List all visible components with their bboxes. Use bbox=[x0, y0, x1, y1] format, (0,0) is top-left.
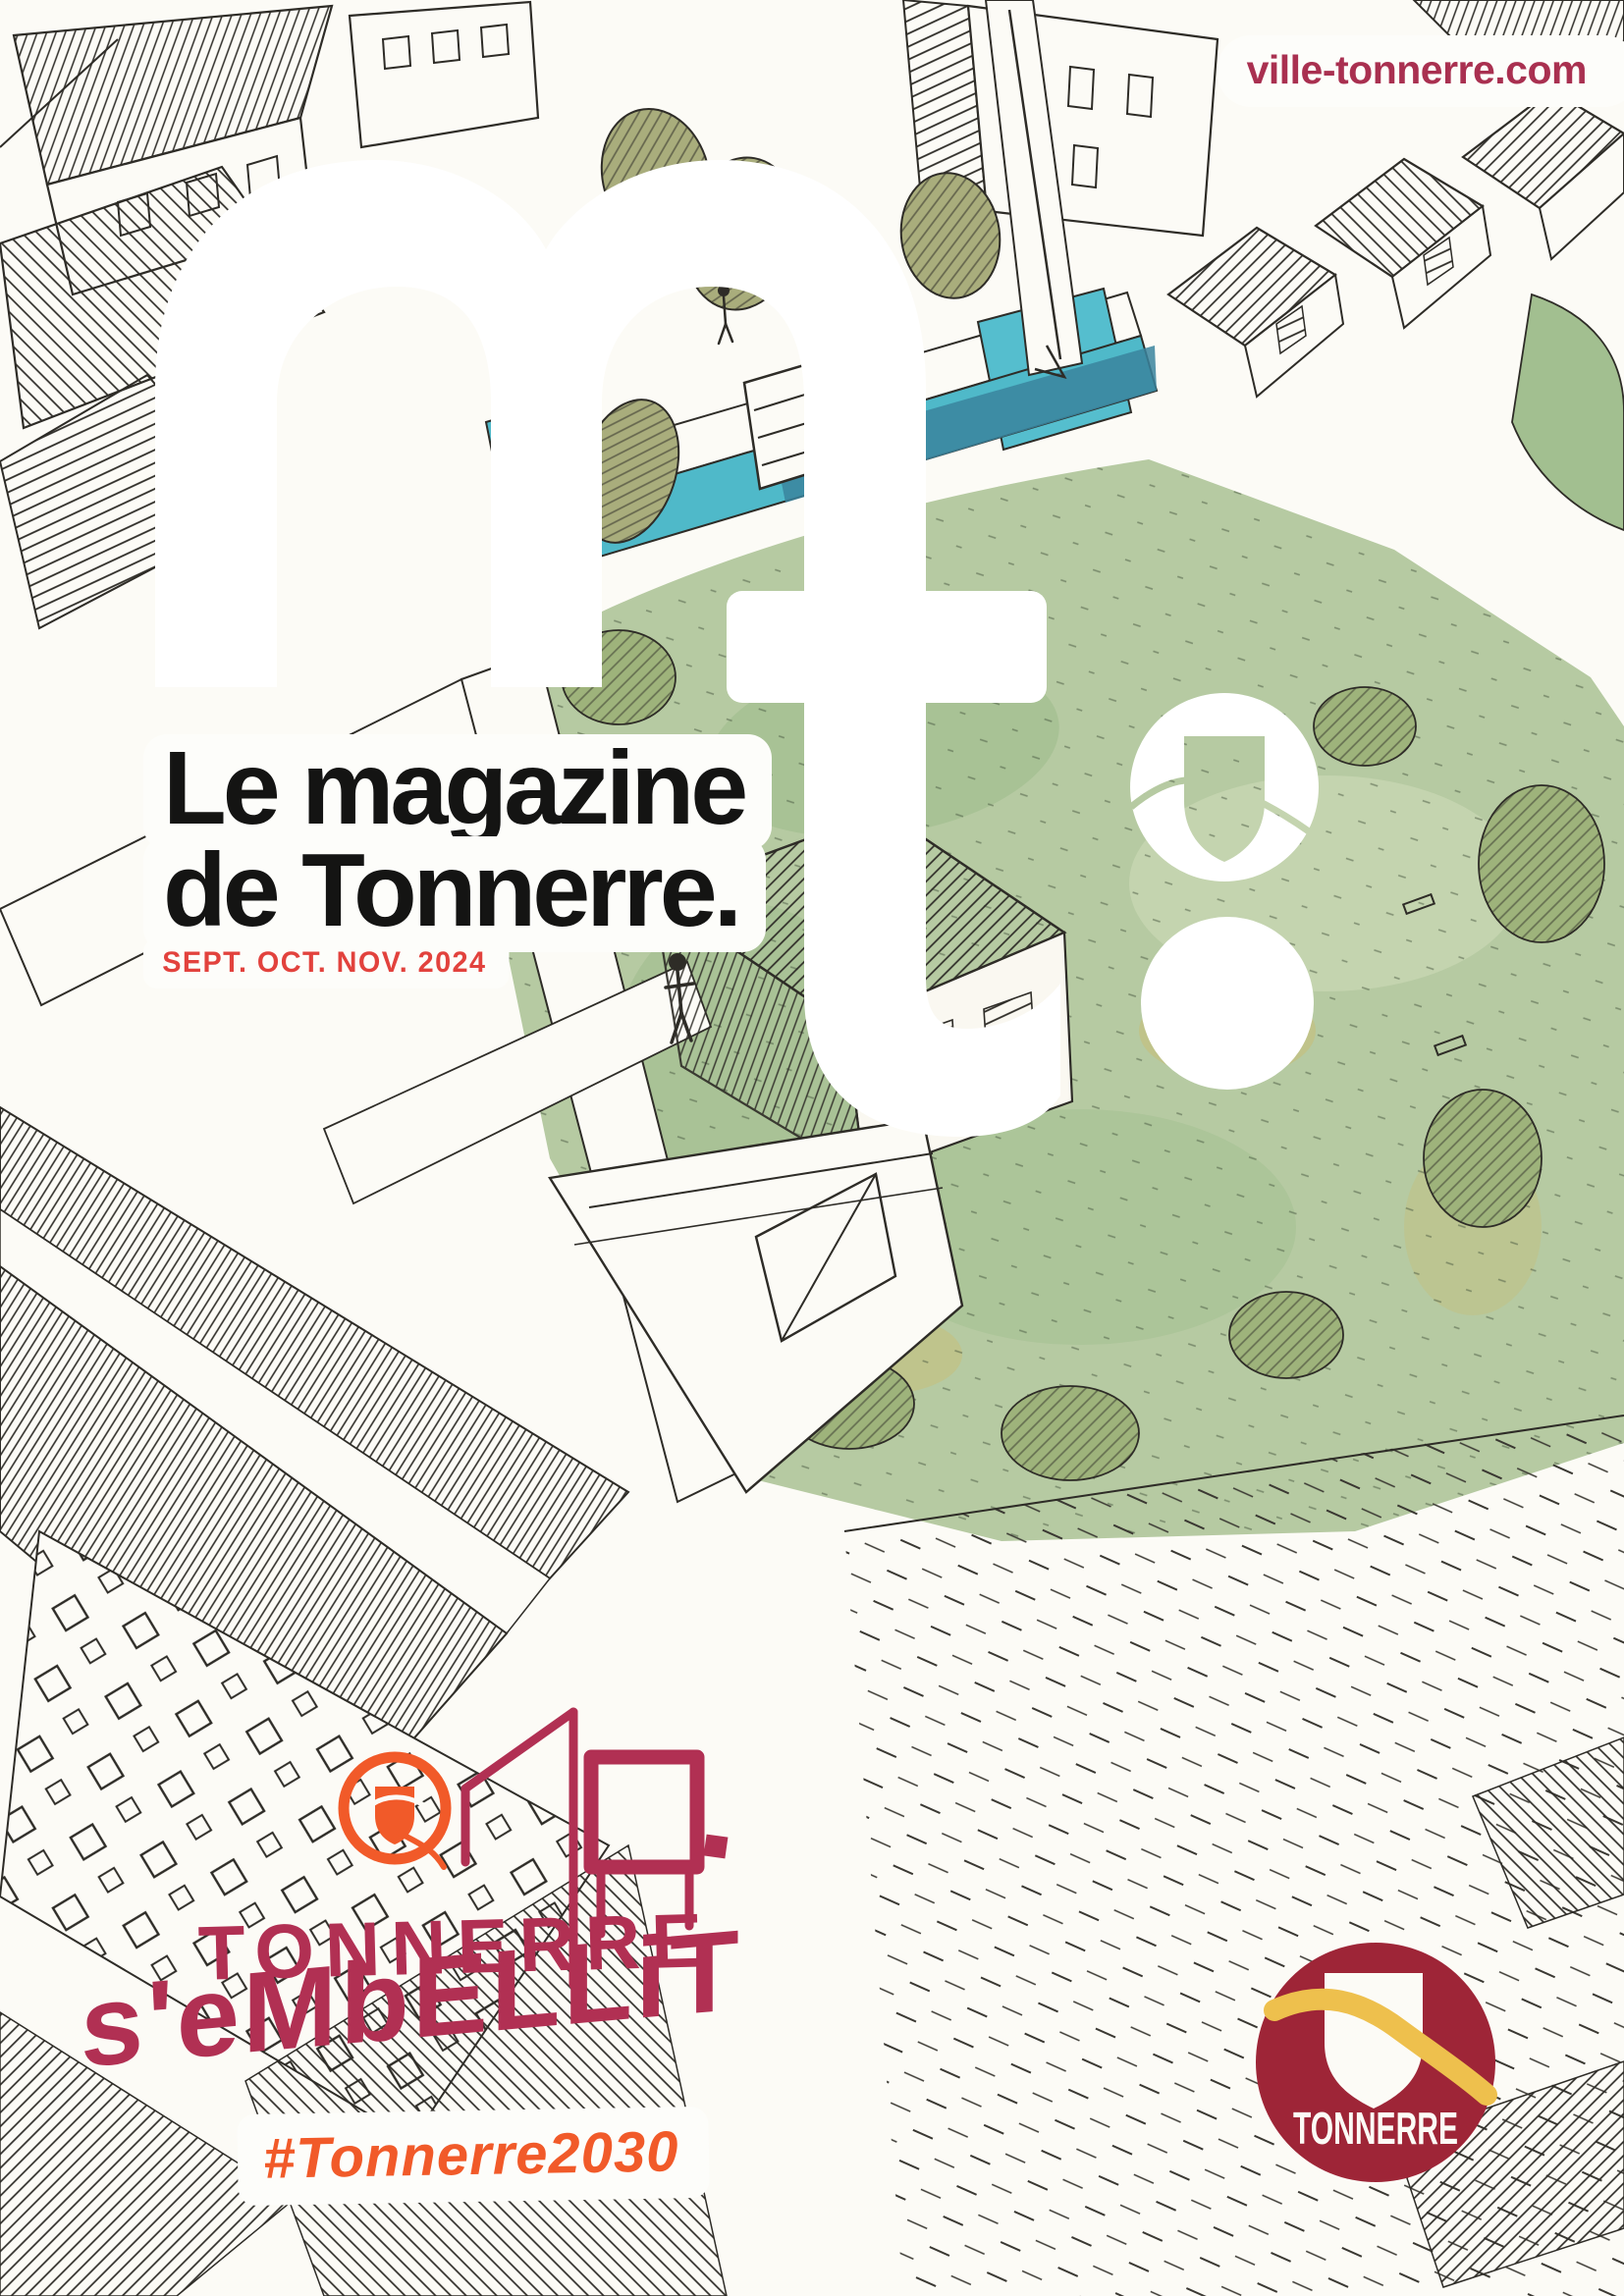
title-line-2: de Tonnerre. bbox=[143, 836, 766, 952]
campaign-hashtag: #Tonnerre2030 bbox=[262, 2119, 679, 2190]
magazine-cover: ville-tonnerre.com Le magazine de Tonner… bbox=[0, 0, 1624, 2296]
logo-period-dot bbox=[1141, 917, 1314, 1090]
logo-letter-t-crossbar bbox=[727, 591, 1047, 703]
city-logo: TONNERRE bbox=[1253, 1940, 1498, 2185]
website-url[interactable]: ville-tonnerre.com bbox=[1218, 35, 1624, 107]
logo-letter-t-stem bbox=[804, 383, 1060, 1137]
issue-date: SEPT. OCT. NOV. 2024 bbox=[143, 938, 510, 988]
campaign-hashtag-pill: #Tonnerre2030 bbox=[237, 2107, 709, 2206]
campaign-eye-shield-icon bbox=[330, 1745, 461, 1883]
logo-shield-ring bbox=[1130, 693, 1319, 881]
masthead-title: Le magazine de Tonnerre. bbox=[143, 734, 772, 952]
city-logo-label: TONNERRE bbox=[1293, 2103, 1458, 2154]
